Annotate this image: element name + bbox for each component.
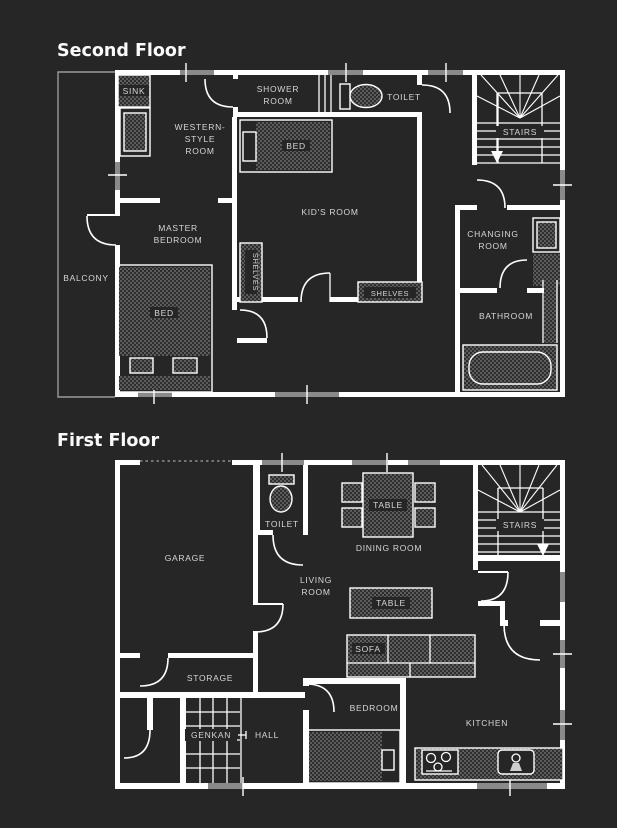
toilet-fixture-1f: TOILET [265, 475, 299, 529]
sink-label: SINK [123, 86, 146, 96]
bedroom-bed: BEDROOM [307, 703, 400, 783]
balcony-label: BALCONY [63, 273, 109, 283]
master-bed-label: BED [154, 308, 174, 318]
changing-room-label-1: CHANGING [467, 229, 518, 239]
dining-table-label: TABLE [373, 500, 403, 510]
genkan-tiles: GENKAN [185, 698, 246, 783]
kids-bed: BED [240, 120, 332, 172]
stairs-first-floor: STAIRS [478, 465, 560, 556]
shower-partition [319, 75, 331, 112]
floor2-title: Second Floor [57, 41, 186, 61]
stairs-2f-label: STAIRS [503, 127, 537, 137]
sink-unit: SINK [118, 75, 150, 156]
bathroom-shaft [543, 280, 557, 343]
toilet-2f-label: TOILET [387, 92, 421, 102]
second-floor-plan: Second Floor BALCONY [57, 41, 572, 404]
shower-room-label-2: ROOM [263, 96, 292, 106]
stairs-1f-label: STAIRS [503, 520, 537, 530]
sofa: SOFA [347, 635, 475, 677]
master-bed: BED [117, 265, 212, 392]
living-room-label-1: LIVING [300, 575, 332, 585]
dining-set: TABLE DINING ROOM [342, 473, 435, 553]
bathroom-label: BATHROOM [479, 311, 533, 321]
living-table-label: TABLE [376, 598, 406, 608]
kids-bed-label: BED [286, 141, 306, 151]
western-room-label-3: ROOM [185, 146, 214, 156]
bathtub [463, 345, 557, 390]
kitchen-counter: KITCHEN [415, 718, 563, 780]
master-bedroom-label-2: BEDROOM [154, 235, 203, 245]
toilet-1f-label: TOILET [265, 519, 299, 529]
storage-label: STORAGE [187, 673, 233, 683]
shelves-left: SHELVES [240, 243, 262, 302]
kitchen-label: KITCHEN [466, 718, 508, 728]
living-table: TABLE [350, 588, 432, 618]
stairs-second-floor: STAIRS [477, 75, 560, 163]
bedroom-label: BEDROOM [350, 703, 399, 713]
shower-room-label-1: SHOWER [257, 84, 299, 94]
floor1-title: First Floor [57, 431, 159, 451]
kids-room-label: KID'S ROOM [301, 207, 358, 217]
changing-room-label-2: ROOM [478, 241, 507, 251]
hall-label: HALL [255, 730, 279, 740]
balcony: BALCONY [58, 72, 115, 397]
master-bedroom-label-1: MASTER [158, 223, 198, 233]
entrance-door [208, 783, 243, 789]
first-floor-plan: First Floor [57, 431, 572, 796]
living-room-label-2: ROOM [301, 587, 330, 597]
western-room-label-2: STYLE [185, 134, 215, 144]
shelves-left-label: SHELVES [251, 253, 260, 291]
sofa-label: SOFA [355, 644, 380, 654]
changing-cabinet [533, 218, 560, 286]
shelves-bottom-label: SHELVES [371, 289, 409, 298]
toilet-fixture-2f: TOILET [340, 84, 421, 109]
dining-room-label: DINING ROOM [356, 543, 422, 553]
garage-label: GARAGE [165, 553, 206, 563]
floorplan-canvas: Second Floor BALCONY [0, 0, 617, 828]
shelves-bottom: SHELVES [358, 282, 422, 302]
western-room-label-1: WESTERN- [175, 122, 226, 132]
genkan-label: GENKAN [191, 730, 231, 740]
